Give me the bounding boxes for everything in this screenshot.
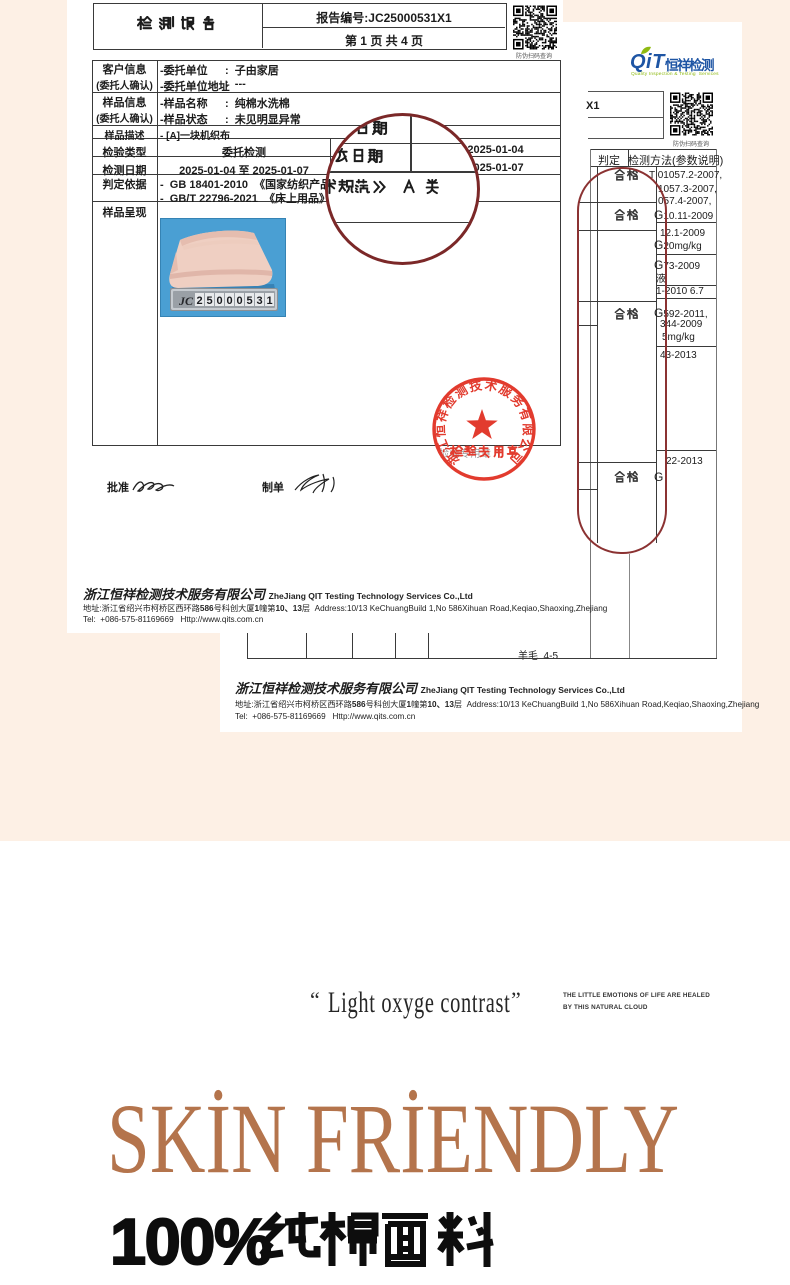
svg-text:5: 5 bbox=[207, 295, 213, 307]
svg-text:0: 0 bbox=[237, 295, 243, 307]
svg-text:2: 2 bbox=[197, 295, 203, 307]
svg-text:1: 1 bbox=[267, 295, 273, 307]
svg-text:0: 0 bbox=[227, 295, 233, 307]
svg-text:0: 0 bbox=[217, 295, 223, 307]
svg-text:3: 3 bbox=[257, 295, 263, 307]
svg-text:5: 5 bbox=[247, 295, 253, 307]
svg-text:JC: JC bbox=[178, 294, 194, 308]
